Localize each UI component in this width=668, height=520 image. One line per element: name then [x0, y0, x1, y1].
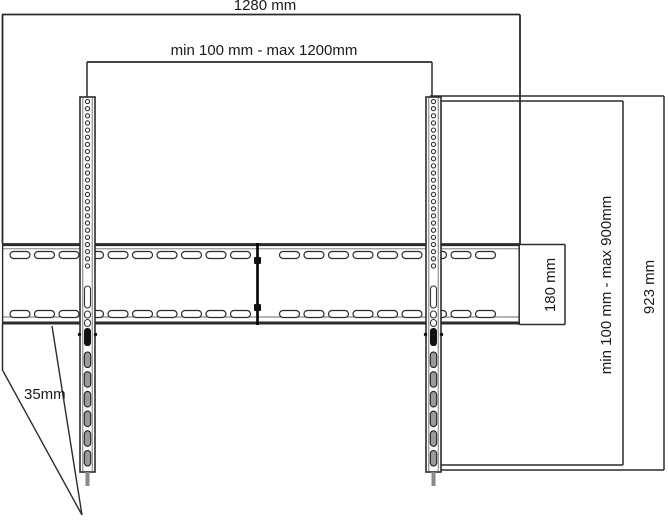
plate-slot: [108, 252, 128, 259]
rail-long-slot: [431, 286, 437, 308]
rail-hole: [431, 142, 435, 146]
rail-hole: [85, 185, 89, 189]
rail-hole: [431, 185, 435, 189]
plate-slot: [182, 311, 202, 318]
plate-slot: [133, 252, 153, 259]
rail-hole: [85, 192, 89, 196]
rail-hole: [431, 221, 435, 225]
plate-slot: [133, 311, 153, 318]
plate-slot: [329, 311, 349, 318]
plate-slot: [304, 252, 324, 259]
rail-bottom-slot: [430, 372, 436, 388]
rail-hole: [85, 257, 89, 261]
plate-slot: [35, 311, 55, 318]
plate-slot: [35, 252, 55, 259]
plate-slot: [280, 311, 300, 318]
rail-hole: [431, 178, 435, 182]
rail-hole: [431, 114, 435, 118]
rail-bottom-slot: [84, 391, 90, 407]
plate-slot: [10, 311, 30, 318]
plate-slot: [231, 252, 251, 259]
rail-bottom-slot: [430, 431, 436, 447]
rail-hole: [85, 242, 89, 246]
dim-label-rail-length: 923 mm: [642, 260, 658, 314]
rail-hole: [431, 242, 435, 246]
dim-label-total-width: 1280 mm: [234, 0, 297, 14]
rail-long-slot: [85, 286, 91, 308]
rail-bottom-slot: [430, 451, 436, 467]
plate-slot: [157, 311, 177, 318]
rail-hole: [85, 207, 89, 211]
plate-slot: [157, 252, 177, 259]
rail-bottom-slot: [84, 451, 90, 467]
rail-bottom-tail: [86, 472, 90, 486]
rail-bottom-slot: [84, 431, 90, 447]
rail-hole: [85, 107, 89, 111]
rail-small-slot: [85, 311, 91, 318]
rail-clamp: [84, 328, 91, 346]
rail-hole: [431, 235, 435, 239]
rail-small-slot: [431, 311, 437, 318]
rail-hole: [85, 178, 89, 182]
plate-slot: [108, 311, 128, 318]
rail-hole: [431, 200, 435, 204]
rail-bottom-slot: [84, 372, 90, 388]
rail-hole: [431, 107, 435, 111]
rail-hole: [85, 157, 89, 161]
rail-clamp: [430, 328, 437, 346]
rail-hole: [431, 192, 435, 196]
rail-bottom-slot: [430, 391, 436, 407]
rail-bottom-slot: [430, 411, 436, 427]
dim-label-depth: 35mm: [24, 387, 66, 403]
plate-slot: [206, 311, 226, 318]
rail-bottom-slot: [430, 352, 436, 368]
dim-label-plate-height: 180 mm: [543, 258, 559, 312]
plate-slot: [182, 252, 202, 259]
rail-hole: [431, 135, 435, 139]
rail-hole: [431, 164, 435, 168]
rail-hole: [431, 121, 435, 125]
plate-slot: [10, 252, 30, 259]
plate-slot: [402, 311, 422, 318]
plate-slot: [231, 311, 251, 318]
dim-label-vertical-range: min 100 mm - max 900mm: [599, 196, 615, 374]
bracket-line-drawing: [0, 0, 668, 520]
plate-slot: [451, 252, 471, 259]
rail-hole: [85, 214, 89, 218]
rail-hole: [431, 207, 435, 211]
plate-slot: [476, 252, 496, 259]
rail-hole: [431, 228, 435, 232]
rail-small-slot: [85, 320, 91, 327]
rail-hole: [85, 200, 89, 204]
rail-hole: [85, 164, 89, 168]
rail-hole: [85, 235, 89, 239]
rail-hole: [85, 128, 89, 132]
rail-hole: [85, 114, 89, 118]
rail-hole: [85, 135, 89, 139]
rail-clamp-pin: [78, 333, 81, 336]
plate-slot: [59, 311, 79, 318]
rail-clamp-pin: [424, 333, 427, 336]
rail-hole: [431, 171, 435, 175]
plate-joint-clamp-top: [254, 257, 261, 264]
plate-slot: [304, 311, 324, 318]
rail-hole: [85, 121, 89, 125]
plate-slot: [378, 252, 398, 259]
rail-hole: [85, 250, 89, 254]
wall-mount-dimension-diagram: 1280 mm min 100 mm - max 1200mm 180 mm m…: [0, 0, 668, 520]
rail-bottom-slot: [84, 352, 90, 368]
rail-hole: [431, 99, 435, 103]
plate-slot: [476, 311, 496, 318]
rail-bottom-slot: [84, 411, 90, 427]
plate-slot: [206, 252, 226, 259]
rail-clamp-pin: [440, 333, 443, 336]
rail-hole: [85, 99, 89, 103]
rail-hole: [85, 149, 89, 153]
rail-hole: [431, 250, 435, 254]
rail-bottom-tail: [432, 472, 436, 486]
rail-hole: [85, 264, 89, 268]
rail-hole: [431, 157, 435, 161]
rail-hole: [431, 128, 435, 132]
dim-label-arm-span-range: min 100 mm - max 1200mm: [171, 43, 358, 59]
plate-slot: [402, 252, 422, 259]
plate-slot: [280, 252, 300, 259]
rail-hole: [431, 214, 435, 218]
rail-hole: [431, 257, 435, 261]
rail-hole: [85, 171, 89, 175]
rail-hole: [85, 228, 89, 232]
plate-joint-clamp-bottom: [254, 304, 261, 311]
plate-slot: [329, 252, 349, 259]
plate-slot: [378, 311, 398, 318]
plate-slot: [451, 311, 471, 318]
rail-small-slot: [431, 320, 437, 327]
rail-hole: [85, 142, 89, 146]
rail-hole: [85, 221, 89, 225]
plate-slot: [353, 252, 373, 259]
rail-clamp-pin: [94, 333, 97, 336]
rail-hole: [431, 149, 435, 153]
plate-slot: [59, 252, 79, 259]
plate-slot: [353, 311, 373, 318]
rail-hole: [431, 264, 435, 268]
